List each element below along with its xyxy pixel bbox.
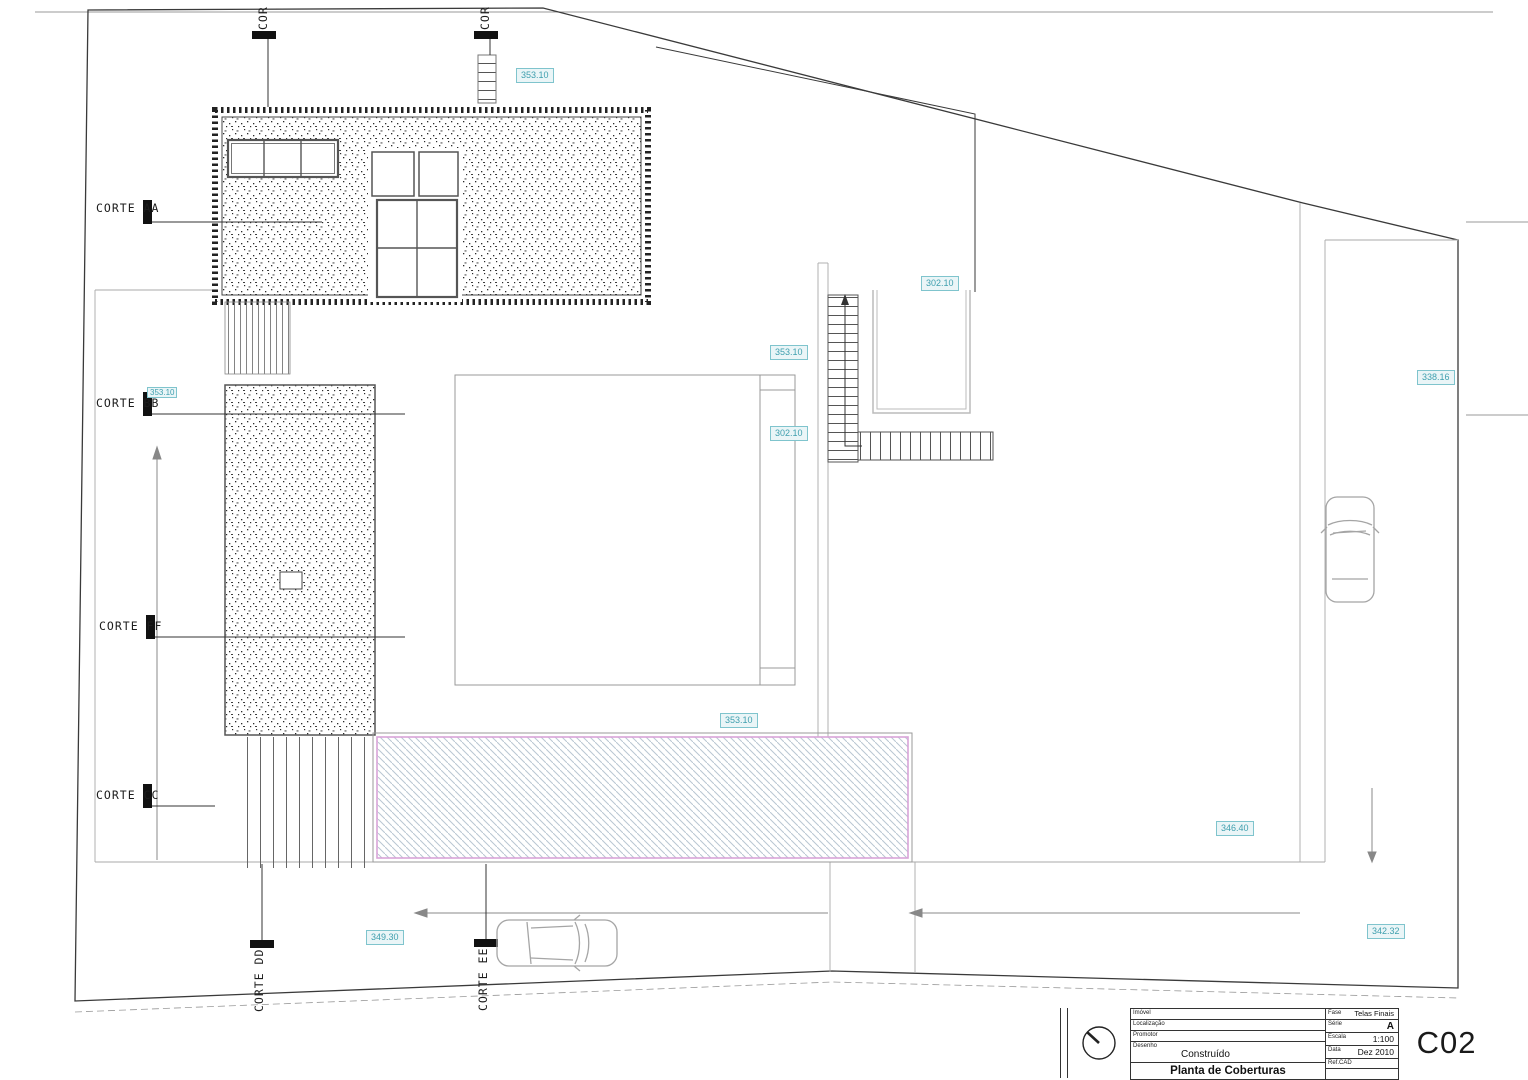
drawing-sheet: CORTE AA CORTE BB CORTE FF CORTE CC CORT… [0,0,1528,1080]
field-desenho: Desenho Construído [1131,1042,1325,1063]
drawing-title-row: Planta de Coberturas [1131,1063,1325,1079]
field-localizacao: Localização [1131,1020,1325,1031]
field-value: Telas Finais [1354,1009,1394,1018]
pergola-lower [235,737,370,868]
main-house-roof [215,55,648,302]
section-label-cc: CORTE CC [96,788,159,802]
title-block: Imóvel Localização Promotor Desenho Cons… [1060,1008,1494,1078]
field-refcad: Ref.CAD [1326,1059,1398,1069]
terrace-roof [455,375,795,685]
field-label: Localização [1133,1021,1165,1027]
title-block-table: Imóvel Localização Promotor Desenho Cons… [1130,1008,1399,1080]
car-icon [497,915,617,971]
field-value: Construído [1181,1050,1230,1059]
north-indicator [1067,1008,1130,1078]
section-label-aa: CORTE AA [96,201,159,215]
elevation-badge: 349.30 [366,930,404,945]
title-block-right: Fase Telas Finais Série A Escala 1:100 D… [1326,1009,1398,1079]
left-wing-roof [225,385,375,735]
elevation-badge: 302.10 [921,276,959,291]
section-label-ff: CORTE FF [99,619,162,633]
elevation-badge: 353.10 [720,713,758,728]
section-label-dd-top: COR [256,6,270,30]
field-escala: Escala 1:100 [1326,1033,1398,1046]
field-label: Escala [1328,1034,1346,1040]
field-label: Data [1328,1047,1341,1053]
skylight-strip [228,140,338,177]
field-value: 1:100 [1373,1035,1394,1044]
exterior-stairs [828,290,993,462]
field-value: A [1387,1022,1394,1031]
elevation-badge: 338.16 [1417,370,1455,385]
title-block-left: Imóvel Localização Promotor Desenho Cons… [1131,1009,1326,1079]
north-arrow-icon [1080,1024,1118,1062]
section-label-bb: CORTE BB [96,396,159,410]
roof-plan-drawing [0,0,1528,1080]
elevation-badge: 342.32 [1367,924,1405,939]
section-label-ee-top: COR [478,6,492,30]
elevation-badge: 353.10 [147,387,177,398]
field-label: Promotor [1133,1032,1158,1038]
field-label: Fase [1328,1010,1341,1016]
elevation-badge: 353.10 [516,68,554,83]
field-fase: Fase Telas Finais [1326,1009,1398,1020]
field-label: Ref.CAD [1328,1060,1352,1066]
field-promotor: Promotor [1131,1031,1325,1042]
section-label-dd: CORTE DD [252,949,266,1012]
roof-ladder [478,55,496,103]
field-label: Imóvel [1133,1010,1151,1016]
elevation-badge: 353.10 [770,345,808,360]
field-serie: Série A [1326,1020,1398,1033]
elevation-badge: 302.10 [770,426,808,441]
roof-hatch-opening [280,572,302,589]
drawing-title: Planta de Coberturas [1170,1065,1286,1077]
field-imovel: Imóvel [1131,1009,1325,1020]
section-label-ee: CORTE EE [476,948,490,1011]
elevation-badge: 346.40 [1216,821,1254,836]
field-label: Série [1328,1021,1342,1027]
sheet-code: C02 [1399,1008,1494,1078]
field-empty [1326,1069,1398,1079]
swimming-pool [373,733,912,862]
car-icon [1321,497,1379,602]
field-data: Data Dez 2010 [1326,1046,1398,1059]
pergola-upper [225,302,290,374]
field-label: Desenho [1133,1043,1157,1049]
field-value: Dez 2010 [1358,1048,1394,1057]
